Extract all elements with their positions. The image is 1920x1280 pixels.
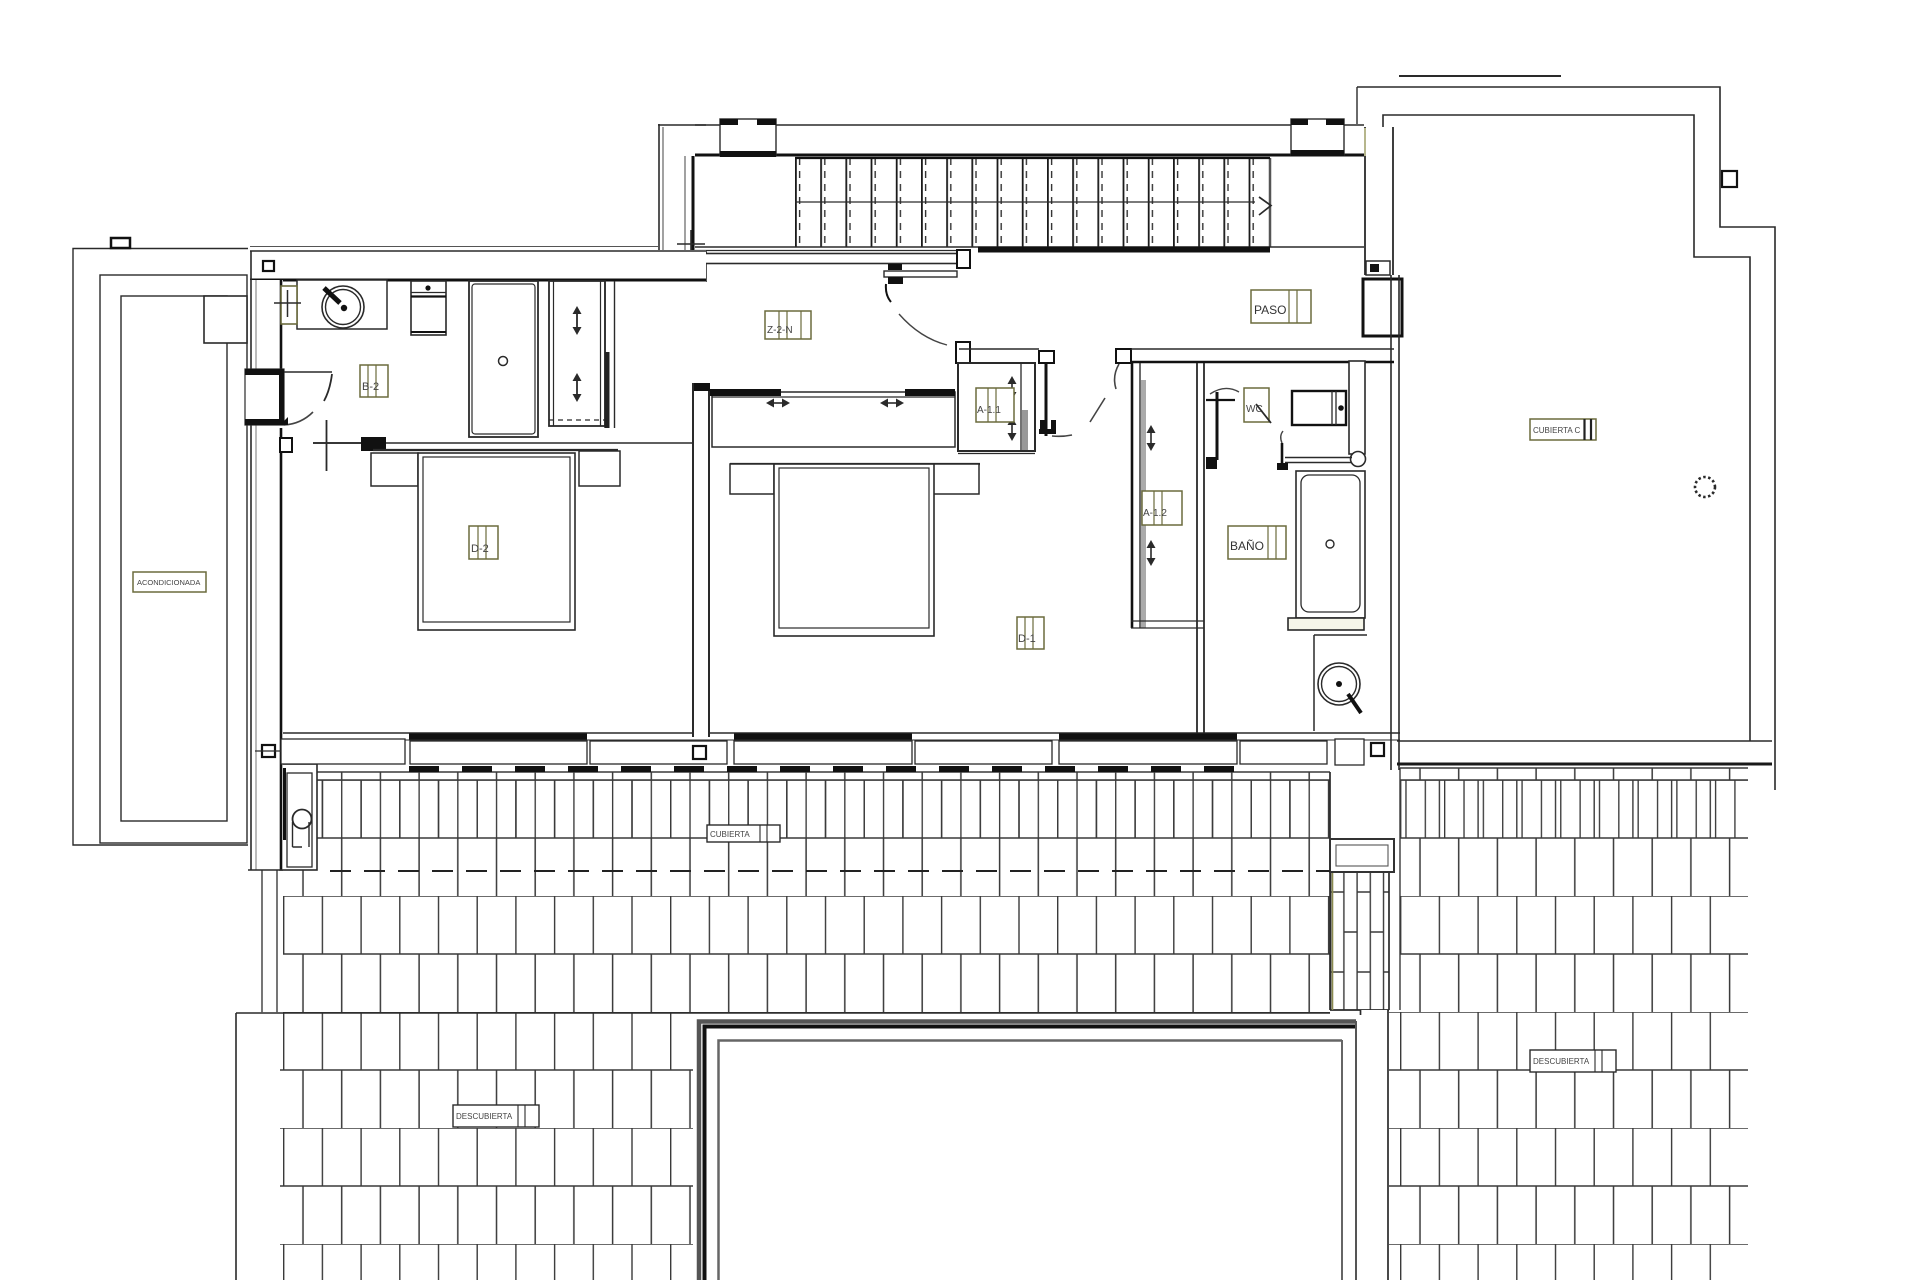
- svg-text:D-1: D-1: [1018, 633, 1036, 645]
- svg-text:DESCUBIERTA: DESCUBIERTA: [456, 1112, 513, 1121]
- svg-text:D-2: D-2: [471, 543, 489, 555]
- svg-text:DESCUBIERTA: DESCUBIERTA: [1533, 1057, 1590, 1066]
- svg-text:CUBIERTA C: CUBIERTA C: [1533, 426, 1580, 435]
- svg-text:CUBIERTA: CUBIERTA: [710, 830, 750, 839]
- svg-text:ACONDICIONADA: ACONDICIONADA: [137, 578, 200, 587]
- svg-text:A-1.2: A-1.2: [1143, 508, 1167, 519]
- svg-text:BAÑO: BAÑO: [1230, 539, 1264, 553]
- svg-text:Z-2-N: Z-2-N: [767, 325, 793, 336]
- svg-text:B-2: B-2: [362, 381, 379, 393]
- svg-text:PASO: PASO: [1254, 303, 1286, 317]
- svg-text:A-1.1: A-1.1: [977, 405, 1001, 416]
